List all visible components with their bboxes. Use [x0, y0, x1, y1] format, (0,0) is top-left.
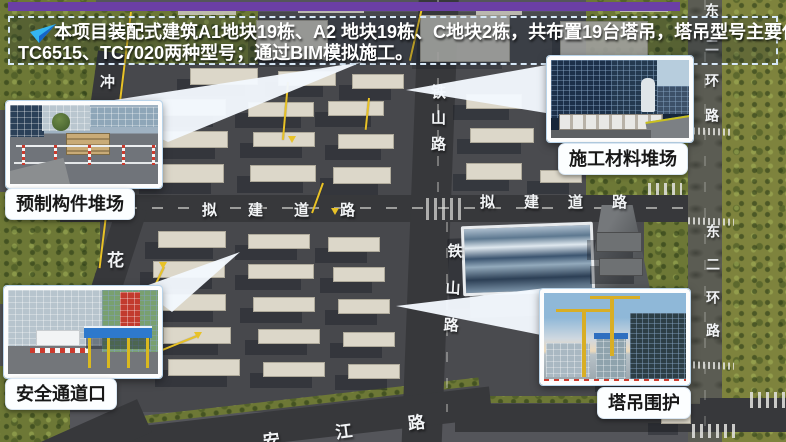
material-silo [641, 78, 655, 112]
crane-ground-barrier [544, 379, 690, 383]
crane-building-glass [630, 313, 688, 379]
building-block [168, 359, 240, 376]
road-label-ring-lower: 东二环路 [703, 224, 723, 356]
safety-leg-1 [88, 338, 91, 368]
building-block [248, 264, 314, 279]
safety-barrier [30, 348, 88, 353]
send-arrow-icon [30, 24, 57, 44]
building-block [596, 232, 642, 252]
road-label-tieshan-upper: 铁山路 [427, 84, 448, 162]
callout-photo-crane [540, 289, 690, 385]
building-block [470, 128, 534, 143]
safety-canopy-shade [86, 338, 150, 349]
building-block [328, 237, 380, 252]
bim-site-plan-slide: 铁山路 铁山路 拟建道路 拟建道路 东二环路 东二环路 花 冲 安江路 本项目装… [0, 0, 786, 442]
precast-striped-post-1 [22, 145, 25, 165]
building-block [263, 362, 325, 377]
building-block [343, 332, 395, 347]
building-block [333, 167, 391, 184]
building-block [250, 165, 316, 182]
building-block [338, 299, 390, 314]
crosswalk-bottom-right-2 [692, 424, 736, 438]
precast-rail-1 [16, 145, 156, 147]
callout-label-material: 施工材料堆场 [558, 143, 688, 175]
building-block [248, 102, 314, 117]
curved-roof-hall-building [461, 222, 595, 297]
crane-jib-2 [590, 296, 640, 299]
callout-label-precast: 预制构件堆场 [5, 188, 135, 220]
precast-striped-post-5 [152, 145, 155, 165]
building-block [352, 74, 404, 89]
header-line-2: TC6515、TC7020两种型号；通过BIM模拟施工。 [18, 42, 413, 64]
safety-leg-3 [127, 338, 130, 368]
safety-leg-2 [107, 338, 110, 368]
callout-photo-material [547, 56, 693, 142]
building-block [466, 94, 522, 109]
callout-label-crane: 塔吊围护 [597, 387, 691, 419]
safety-canopy-roof [84, 326, 152, 338]
building-block [338, 134, 394, 149]
crane-mast-1 [582, 309, 586, 377]
building-block [158, 294, 226, 311]
crane-line-arrowhead [194, 332, 202, 339]
precast-tree [52, 113, 70, 131]
precast-striped-post-3 [88, 145, 91, 165]
header-line-1: 本项目装配式建筑A1地块19栋、A2 地块19栋、C地块2栋，共布置19台塔吊，… [54, 21, 786, 43]
crane-line-arrowhead [288, 136, 296, 143]
building-block [152, 99, 226, 116]
crosswalk-bottom-right-1 [750, 392, 786, 408]
crane-mast-2 [610, 296, 614, 356]
crane-line-arrowhead [159, 262, 167, 269]
road-label-proposed-left: 拟建道路 [202, 199, 386, 220]
building-block [333, 267, 385, 282]
callout-label-safety: 安全通道口 [5, 378, 117, 410]
precast-striped-post-4 [122, 145, 125, 165]
safety-leg-4 [146, 338, 149, 368]
material-building-right [657, 86, 691, 114]
precast-rack-row [90, 107, 160, 127]
safety-hoist-red [120, 292, 140, 330]
building-block [158, 231, 226, 248]
building-block [599, 258, 643, 276]
building-block [348, 364, 400, 379]
building-block [152, 164, 224, 183]
building-block [248, 234, 310, 249]
safety-tent [36, 330, 80, 346]
road-label-hua: 花 [107, 246, 124, 271]
callout-photo-precast [6, 101, 162, 188]
crosswalk-tieshan [426, 198, 462, 220]
title-accent-bar [8, 2, 680, 11]
material-sky [657, 60, 691, 88]
material-ground [551, 130, 651, 140]
crane-ground [544, 382, 690, 385]
building-block [466, 163, 522, 180]
road-label-proposed-right: 拟建道路 [480, 191, 656, 212]
building-block [190, 68, 258, 85]
material-tower-1 [551, 60, 611, 118]
callout-photo-safety [4, 286, 162, 378]
building-block [253, 297, 315, 312]
precast-building-dark [10, 105, 44, 137]
building-block [258, 329, 320, 344]
building-block [328, 101, 384, 116]
road-label-chong: 冲 [100, 71, 115, 92]
